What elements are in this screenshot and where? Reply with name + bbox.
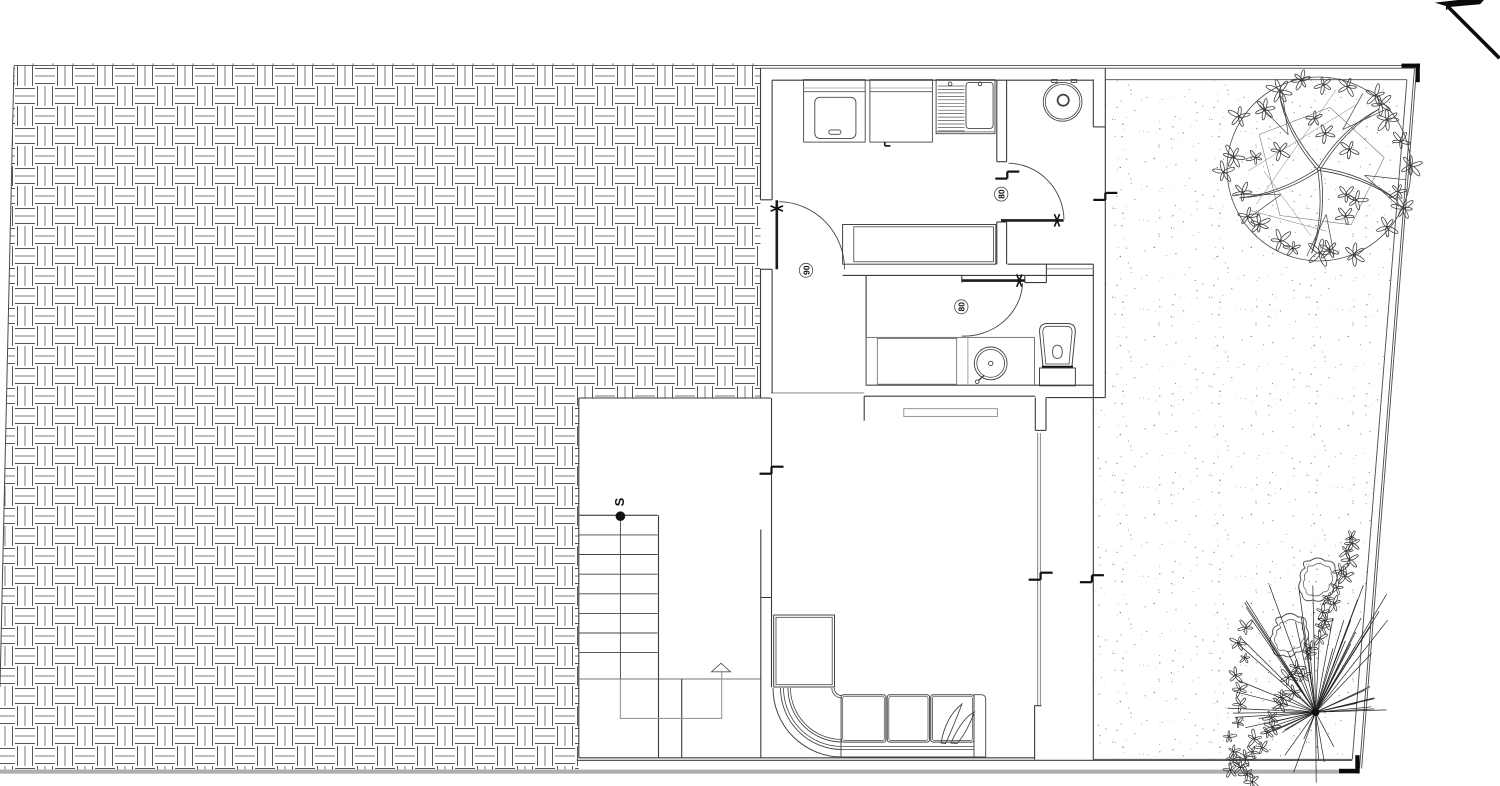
svg-text:80: 80 bbox=[997, 189, 1007, 199]
svg-text:80: 80 bbox=[957, 302, 967, 312]
svg-text:S: S bbox=[612, 497, 627, 506]
svg-text:90: 90 bbox=[801, 265, 811, 275]
